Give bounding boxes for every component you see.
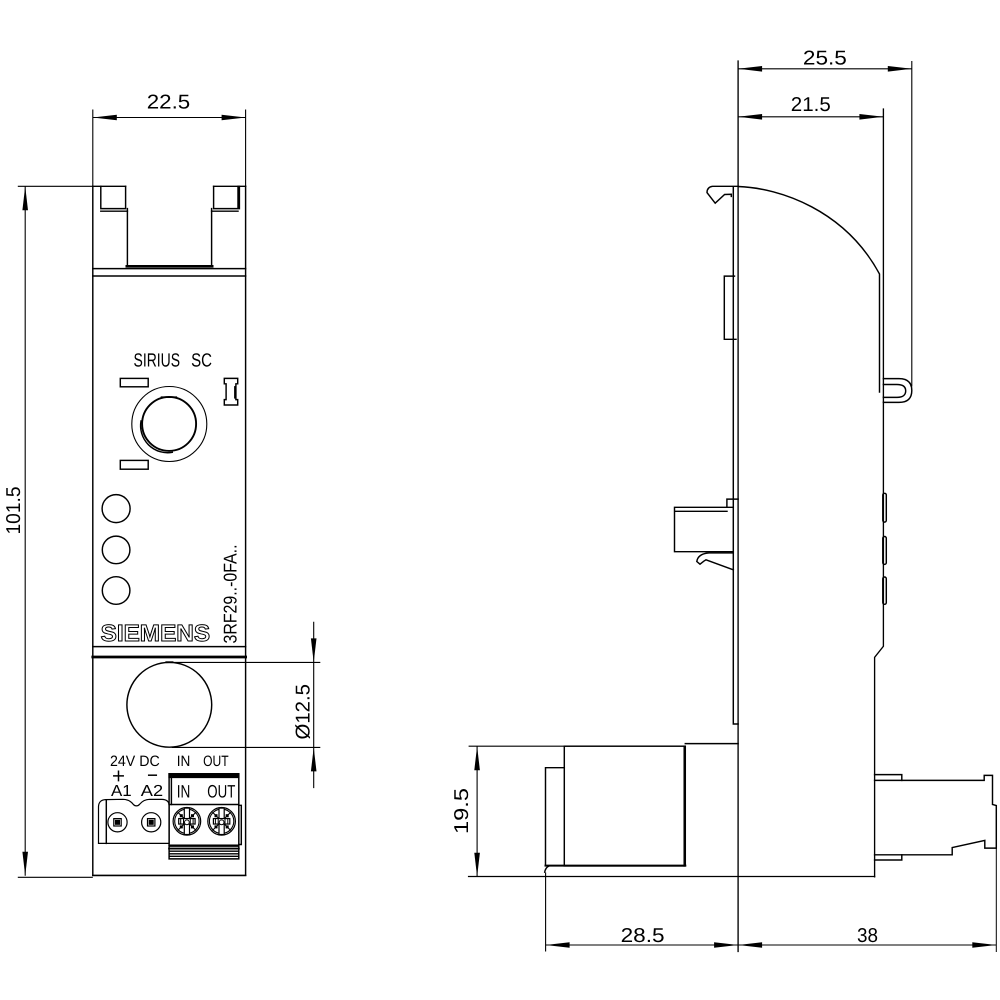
svg-text:SIEMENS: SIEMENS <box>101 620 210 646</box>
svg-text:3RF29..-0FA..: 3RF29..-0FA.. <box>220 545 241 644</box>
svg-text:SIRIUS: SIRIUS <box>134 351 181 372</box>
svg-text:101.5: 101.5 <box>3 487 25 535</box>
svg-text:25.5: 25.5 <box>803 48 847 70</box>
svg-text:IN: IN <box>177 753 191 770</box>
svg-text:21.5: 21.5 <box>791 94 831 116</box>
svg-text:IN: IN <box>177 782 191 802</box>
svg-text:SC: SC <box>191 351 212 372</box>
svg-text:OUT: OUT <box>207 782 235 802</box>
svg-text:OUT: OUT <box>203 753 229 770</box>
svg-text:28.5: 28.5 <box>621 925 665 947</box>
svg-text:A1: A1 <box>111 783 132 800</box>
svg-text:38: 38 <box>857 925 878 947</box>
svg-text:22.5: 22.5 <box>147 92 191 114</box>
svg-text:Ø12.5: Ø12.5 <box>293 684 315 740</box>
svg-text:24V DC: 24V DC <box>110 753 160 770</box>
svg-text:19.5: 19.5 <box>451 788 473 834</box>
svg-text:A2: A2 <box>141 783 163 800</box>
